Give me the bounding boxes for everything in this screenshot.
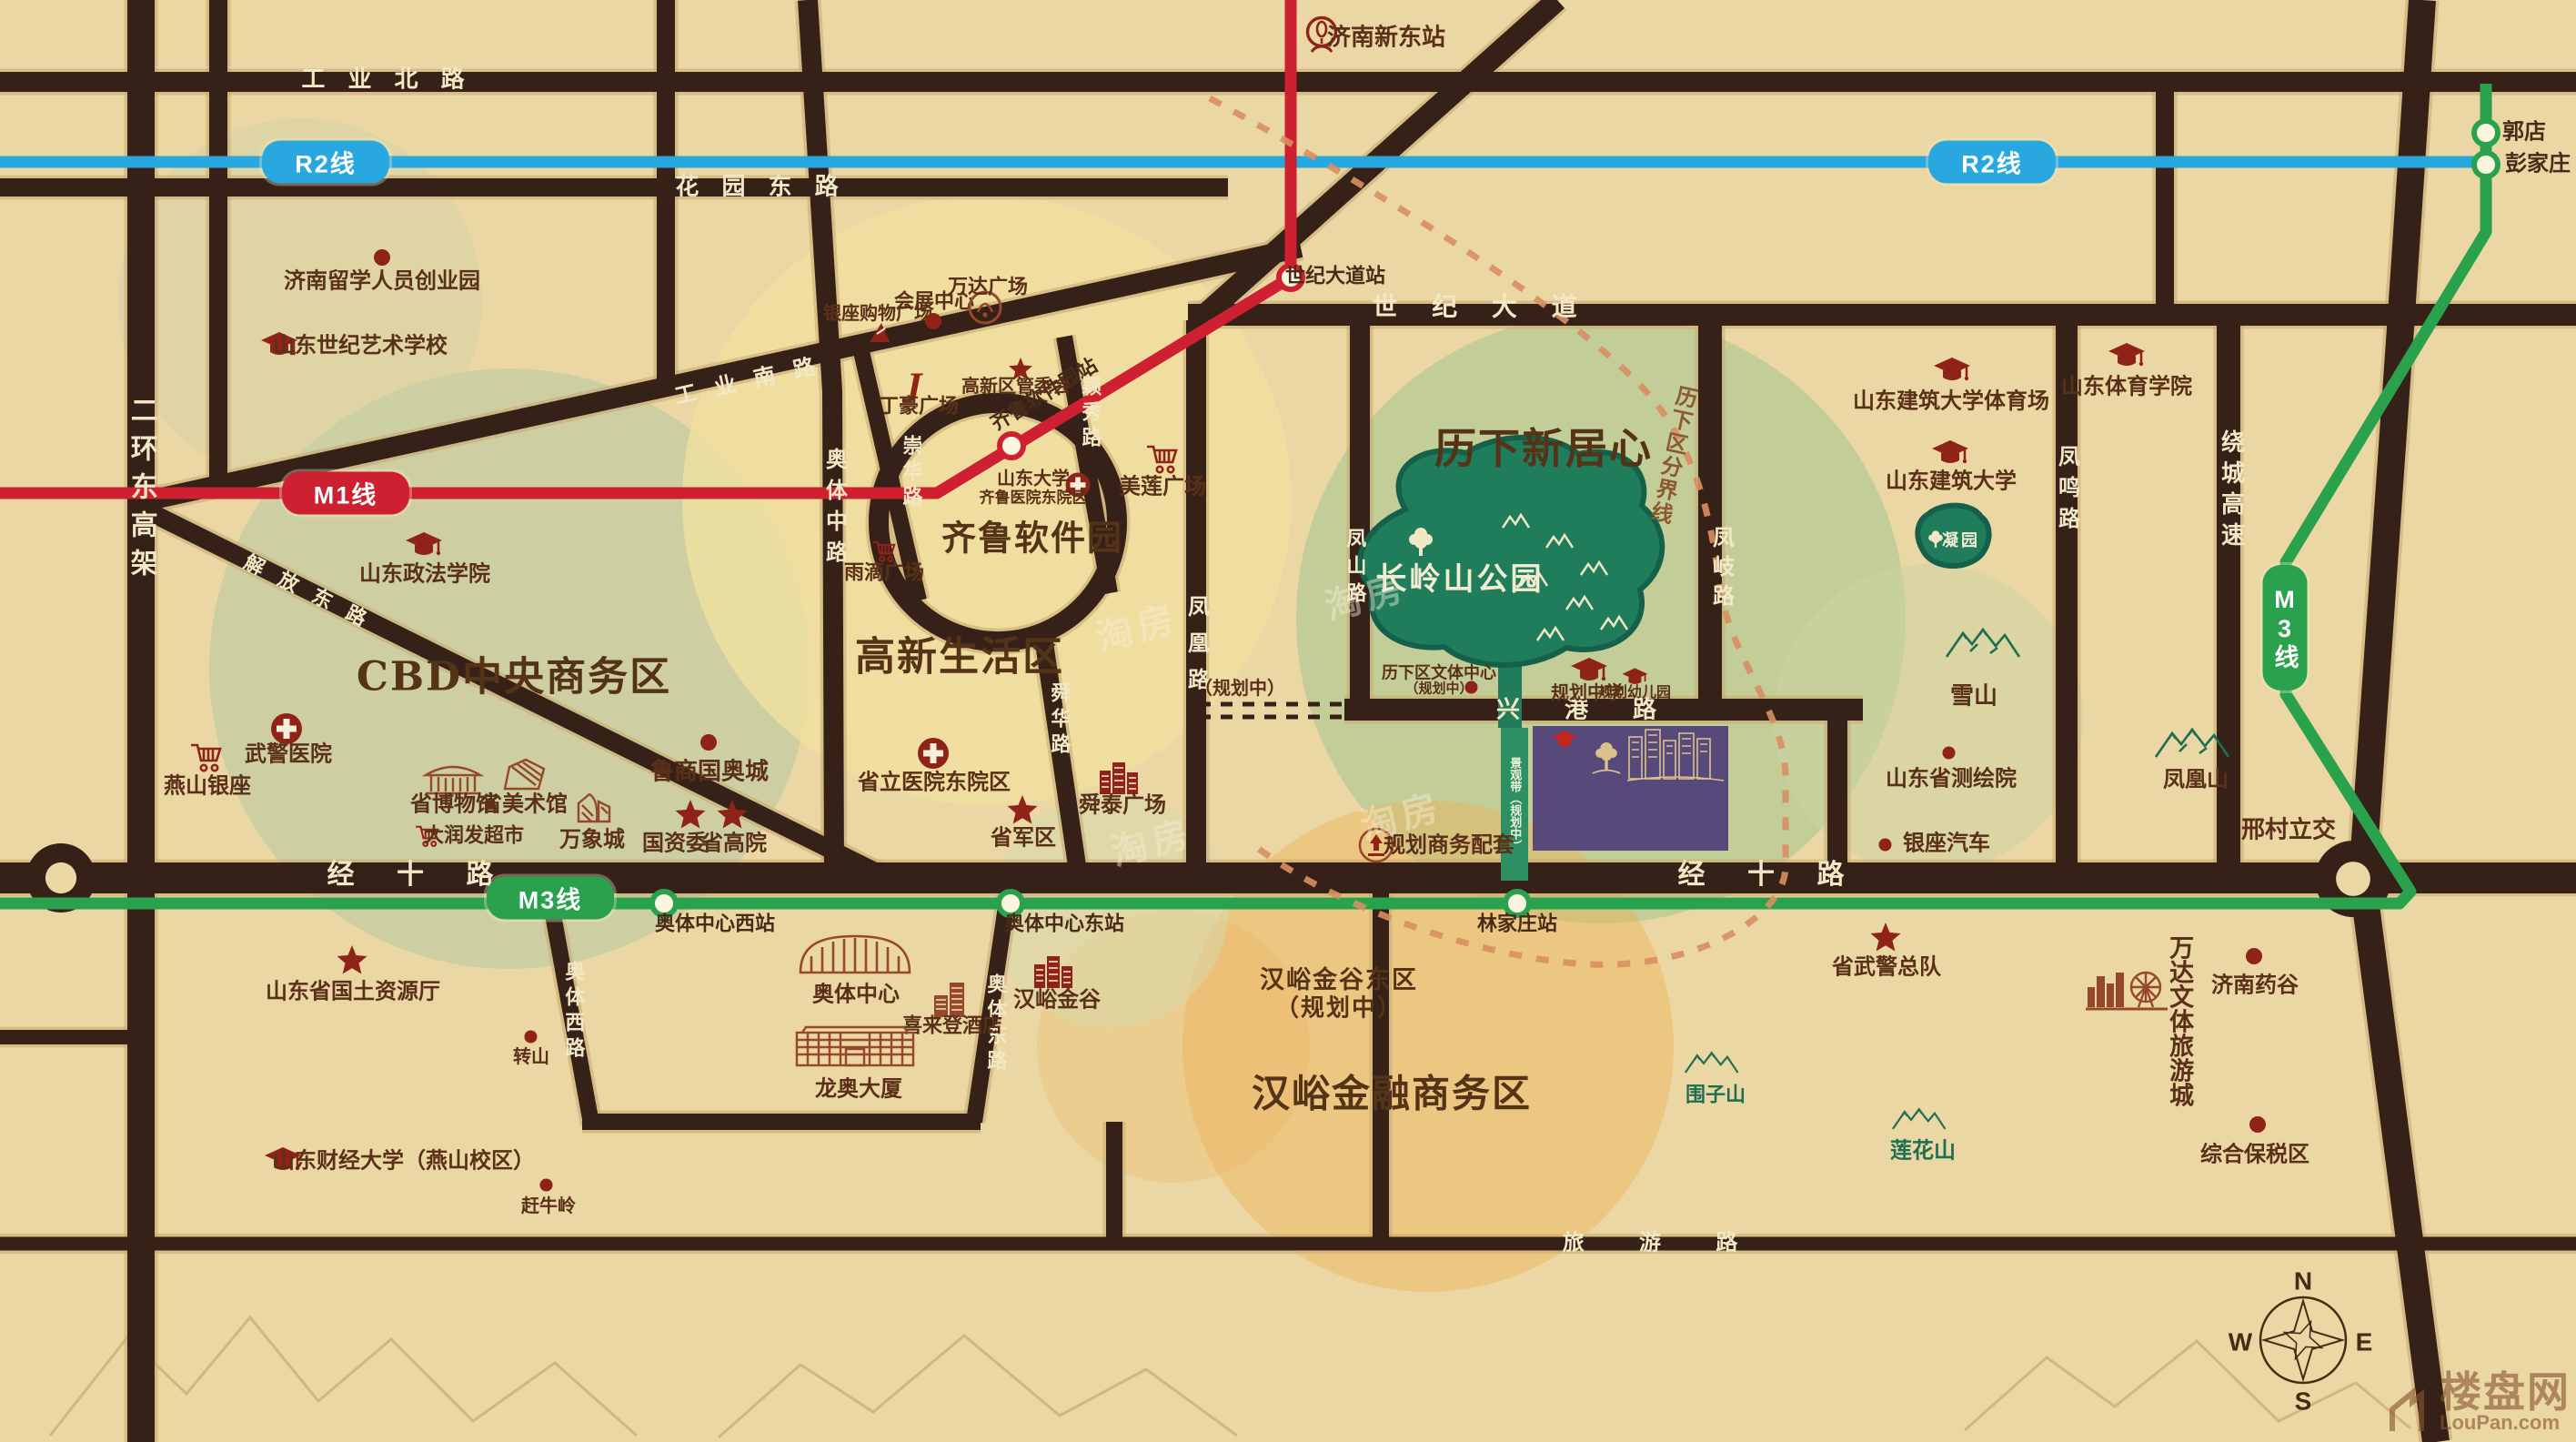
jianzhu-univ-icon	[1930, 439, 1970, 468]
road-label: 经 十 路	[1678, 860, 1861, 891]
zhengfa-college-label: 山东政法学院	[359, 563, 490, 588]
lixia-wenti-center-label: 历下区文体中心（规划中）	[1382, 664, 1496, 698]
jianzhu-univ-stadium-icon	[1932, 356, 1972, 385]
hanyu-jingu-label: 汉峪金谷	[1013, 989, 1101, 1013]
olympic-center-icon	[795, 931, 915, 978]
tiyu-college-icon	[2107, 341, 2147, 370]
yinzuo-auto-icon	[1878, 838, 1892, 852]
wujing-zongdui-label: 省武警总队	[1832, 956, 1941, 981]
road-label: 绕城高速	[2217, 429, 2243, 553]
prov-art-museum-label: 省美术馆	[480, 793, 568, 818]
gaoxin-guanweihui-label: 高新区管委会	[961, 377, 1071, 397]
junction-center	[2336, 862, 2370, 896]
olympic-center-label: 奥体中心	[812, 983, 900, 1008]
yudi-plaza-label: 雨滴广场	[844, 562, 924, 585]
zone-label: CBD中央商务区	[357, 654, 671, 699]
junction-center	[45, 862, 76, 893]
road-label: 崇华路	[900, 435, 922, 511]
station-label-彭家庄: 彭家庄	[2505, 153, 2571, 177]
house-icon	[2385, 1386, 2434, 1435]
loupan-watermark-logo: 楼盘网 LouPan.com	[2385, 1374, 2571, 1435]
shengjunqu-icon	[1005, 793, 1040, 828]
qilu-hospital-east-label: 山东大学齐鲁医院东院区	[980, 469, 1088, 506]
weizishan-icon	[1683, 1049, 1741, 1076]
gold-buildings-icon	[1625, 726, 1726, 784]
longao-tower-label: 龙奥大厦	[815, 1078, 902, 1103]
road-label: 凤鸣路	[2055, 445, 2079, 538]
wanda-cultural-city-icon	[2084, 963, 2169, 1013]
fenghuangshan-label: 凤凰山	[2163, 769, 2229, 793]
station-齐鲁软件园站	[1000, 434, 1023, 458]
transit-badge-M3线: M3线	[487, 877, 614, 920]
transit-badge-M3线: M3线	[2263, 565, 2308, 691]
jinan-yaogu-label: 济南药谷	[2211, 974, 2299, 999]
station-label-奥体中心东站: 奥体中心东站	[1004, 913, 1124, 936]
century-art-school-label: 山东世纪艺术学校	[273, 335, 448, 359]
station-郭店	[2474, 121, 2498, 145]
zone-label: 高新生活区	[855, 634, 1064, 679]
station-label-奥体中心西站: 奥体中心西站	[655, 913, 775, 936]
xueshan-icon	[1943, 624, 2023, 660]
road-label: 旅 游 路	[1563, 1231, 1762, 1255]
shuntai-plaza-icon	[1096, 758, 1145, 796]
shengjunqu-label: 省军区	[991, 827, 1056, 852]
fenghuangshan-icon	[2152, 724, 2232, 761]
compass-e: E	[2356, 1327, 2373, 1356]
road-绕城高速	[2362, 0, 2436, 1442]
jingyuan-property-block	[1533, 726, 1728, 851]
zone-label: 汉峪金谷东区	[1260, 966, 1418, 993]
wujing-hospital-label: 武警医院	[245, 743, 332, 768]
station-label-林家庄站: 林家庄站	[1477, 913, 1557, 936]
compass-rose-icon	[2260, 1297, 2346, 1383]
guoziwei-icon	[673, 798, 708, 832]
road-label: 奥体中路	[822, 448, 847, 571]
sheraton-hotel-icon	[930, 975, 971, 1019]
zone-label: 历下新居心	[1434, 426, 1653, 473]
map-geometry	[0, 0, 2576, 1442]
transit-badge-R2线: R2线	[1928, 141, 2056, 184]
planned-kindergarten-icon	[1621, 667, 1649, 688]
map-label: （规划中）	[1194, 679, 1285, 699]
longao-tower-icon	[793, 1022, 917, 1069]
yinzuo-auto-label: 银座汽车	[1903, 832, 1990, 857]
logo-cn: 楼盘网	[2440, 1374, 2571, 1411]
lushang-guoaocheng-icon	[699, 733, 718, 751]
road-label: 舜华路	[1048, 682, 1071, 759]
guotu-ziyuan-ting-label: 山东省国土资源厅	[266, 981, 440, 1005]
sheraton-hotel-label: 喜来登酒店	[902, 1015, 1002, 1038]
meilian-plaza-icon	[1144, 442, 1181, 477]
deco-mountain-range-icon	[719, 1336, 1237, 1437]
liuxue-park-icon	[373, 248, 391, 267]
cehuiyuan-label: 山东省测绘院	[1886, 768, 2017, 792]
zhuanshan-label: 转山	[513, 1047, 549, 1067]
station-label-世纪大道站: 世纪大道站	[1285, 266, 1385, 288]
jinan-new-east-station-label: 济南新东站	[1327, 24, 1445, 50]
weizishan-label: 围子山	[1685, 1084, 1746, 1107]
lianhuashan-label: 莲花山	[1890, 1140, 1956, 1165]
shenggaoyuan-label: 省高院	[701, 832, 767, 857]
compass-w: W	[2229, 1327, 2252, 1356]
lushang-guoaocheng-label: 鲁商国奥城	[650, 758, 769, 784]
jianzhu-univ-stadium-label: 山东建筑大学体育场	[1853, 390, 2049, 415]
dinghao-plaza-label: 丁豪广场	[879, 396, 959, 418]
yanshan-yinzuo-label: 燕山银座	[164, 775, 251, 800]
xueshan-label: 雪山	[1950, 682, 1997, 709]
road-label: 凤岐路	[1709, 526, 1734, 613]
ganniuling-icon	[539, 1178, 553, 1192]
zhengfa-college-icon	[404, 530, 444, 560]
road-label: 工 业 北 路	[301, 66, 471, 93]
wujing-hospital-icon	[269, 711, 304, 746]
planned-middle-school-icon	[1569, 656, 1609, 685]
wanda-cultural-city-label: 万达文体旅游城	[2166, 935, 2193, 1107]
meilian-plaza-label: 美莲广场	[1119, 476, 1206, 500]
mixc-mall-icon	[571, 785, 617, 827]
school-cap-icon	[1551, 730, 1578, 750]
hanyu-jingu-icon	[1031, 952, 1080, 990]
station-label-郭店: 郭店	[2502, 121, 2546, 146]
jianzhu-univ-label: 山东建筑大学	[1886, 470, 2017, 495]
jinan-yaogu-icon	[2245, 947, 2263, 965]
zone-label: （规划中）	[1275, 994, 1403, 1021]
zone-label: 齐鲁软件园	[941, 519, 1123, 559]
guoziwei-label: 国资委	[642, 832, 708, 857]
zonghe-baoshuiqu-icon	[2249, 1115, 2267, 1134]
compass-s: S	[2295, 1387, 2312, 1415]
road-label: 奥体西路	[562, 961, 585, 1063]
convention-center-icon	[924, 312, 942, 330]
liuxue-park-label: 济南留学人员创业园	[284, 270, 480, 295]
cehuiyuan-icon	[1942, 746, 1956, 760]
planned-kindergarten-label: 规划幼儿园	[1598, 685, 1671, 701]
darunfa-market-label: 大润发超市	[424, 825, 524, 848]
prov-hospital-east-icon	[916, 736, 951, 771]
road-label: 花 园 东 路	[675, 174, 845, 200]
zonghe-baoshuiqu-label: 综合保税区	[2200, 1144, 2309, 1168]
transit-badge-M1线: M1线	[282, 472, 409, 515]
road-label: 经 十 路	[327, 860, 510, 891]
yanshan-yinzuo-icon	[188, 741, 225, 775]
road-label: 二环东高架	[126, 396, 156, 587]
compass-n: N	[2294, 1266, 2312, 1295]
zhuanshan-icon	[524, 1030, 538, 1044]
map-label: 邢村立交	[2241, 816, 2336, 842]
lianhuashan-icon	[1890, 1105, 1948, 1133]
gold-tree-icon	[1591, 739, 1622, 777]
caijing-univ-label: 山东财经大学（燕山校区）	[273, 1150, 535, 1175]
guotu-ziyuan-ting-icon	[335, 943, 369, 978]
prov-art-museum-icon	[498, 754, 550, 796]
prov-hospital-east-label: 省立医院东院区	[858, 771, 1011, 796]
ganniuling-label: 赶牛岭	[521, 1196, 576, 1216]
park-label: 凝园	[1942, 531, 1980, 550]
wanda-plaza-label: 万达广场	[948, 277, 1028, 299]
road-label: 颖秀路	[1079, 376, 1102, 452]
zone-label: 汉峪金融商务区	[1252, 1072, 1532, 1114]
mixc-mall-label: 万象城	[559, 829, 625, 853]
map-canvas: 长岭山公园凝园景观带（规划中）世纪大道站齐鲁软件园站奥体中心西站奥体中心东站林家…	[0, 0, 2576, 1442]
logo-en: LouPan.com	[2440, 1411, 2571, 1435]
shenggaoyuan-icon	[715, 798, 750, 832]
road-label: 世 纪 大 道	[1372, 292, 1589, 320]
tiyu-college-label: 山东体育学院	[2061, 376, 2192, 400]
wujing-zongdui-icon	[1868, 921, 1903, 955]
station-彭家庄	[2474, 153, 2498, 176]
transit-badge-R2线: R2线	[262, 141, 389, 184]
